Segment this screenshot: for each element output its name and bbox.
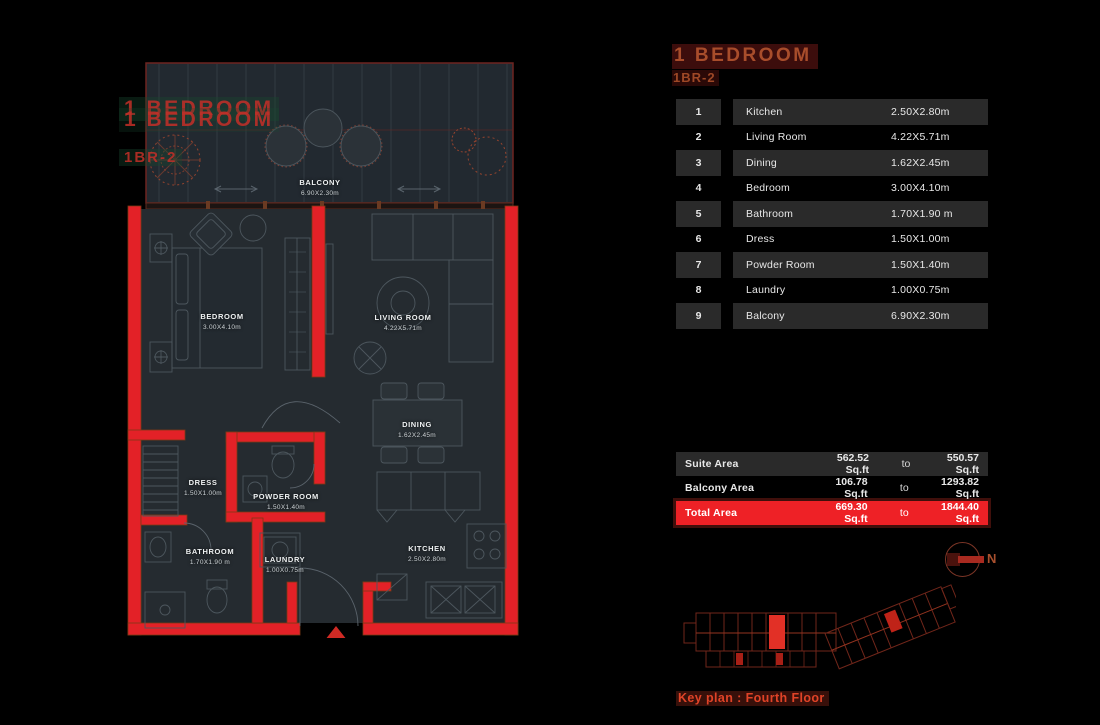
rooms-table: 1 Kitchen2.50X2.80m 2 Living Room4.22X5.… [676, 99, 988, 329]
table-row: 9 Balcony6.90X2.30m [676, 303, 988, 329]
bed [172, 248, 262, 368]
watermark-code: 1BR-2 [119, 149, 182, 166]
area-row-suite: Suite Area 562.52 Sq.ft to 550.57 Sq.ft [676, 452, 988, 476]
unit-code: 1BR-2 [672, 70, 719, 86]
key-plan-left-wing [684, 613, 836, 667]
page: { "header": { "title": "1 BEDROOM", "cod… [0, 0, 1100, 725]
table-row: 8 Laundry1.00X0.75m [676, 278, 988, 304]
key-plan-caption: Key plan : Fourth Floor [676, 691, 829, 706]
table-row: 4 Bedroom3.00X4.10m [676, 176, 988, 202]
north-compass-icon: N [943, 540, 1003, 580]
side-table [354, 342, 386, 374]
table-row: 1 Kitchen2.50X2.80m [676, 99, 988, 125]
watermark-title-echo: 1 BEDROOM [119, 108, 279, 132]
balcony-area [146, 63, 513, 211]
table-row: 3 Dining1.62X2.45m [676, 150, 988, 176]
table-row: 2 Living Room4.22X5.71m [676, 125, 988, 151]
floor-plan: 1 BEDROOM 1 BEDROOM 1BR-2 BALCONY6.90X2.… [123, 56, 523, 638]
key-plan-right-wing [825, 583, 956, 669]
entry-marker-icon [325, 626, 347, 638]
area-row-total: Total Area 669.30 Sq.ft to 1844.40 Sq.ft [676, 501, 988, 525]
area-row-balcony: Balcony Area 106.78 Sq.ft to 1293.82 Sq.… [676, 476, 988, 500]
table-row: 7 Powder Room1.50X1.40m [676, 252, 988, 278]
area-table: Suite Area 562.52 Sq.ft to 550.57 Sq.ft … [676, 452, 988, 525]
key-plan [676, 583, 956, 683]
north-label: N [987, 551, 996, 566]
table-row: 6 Dress1.50X1.00m [676, 227, 988, 253]
page-title: 1 BEDROOM [672, 44, 818, 69]
floor-plan-drawing [123, 56, 523, 638]
table-row: 5 Bathroom1.70X1.90 m [676, 201, 988, 227]
